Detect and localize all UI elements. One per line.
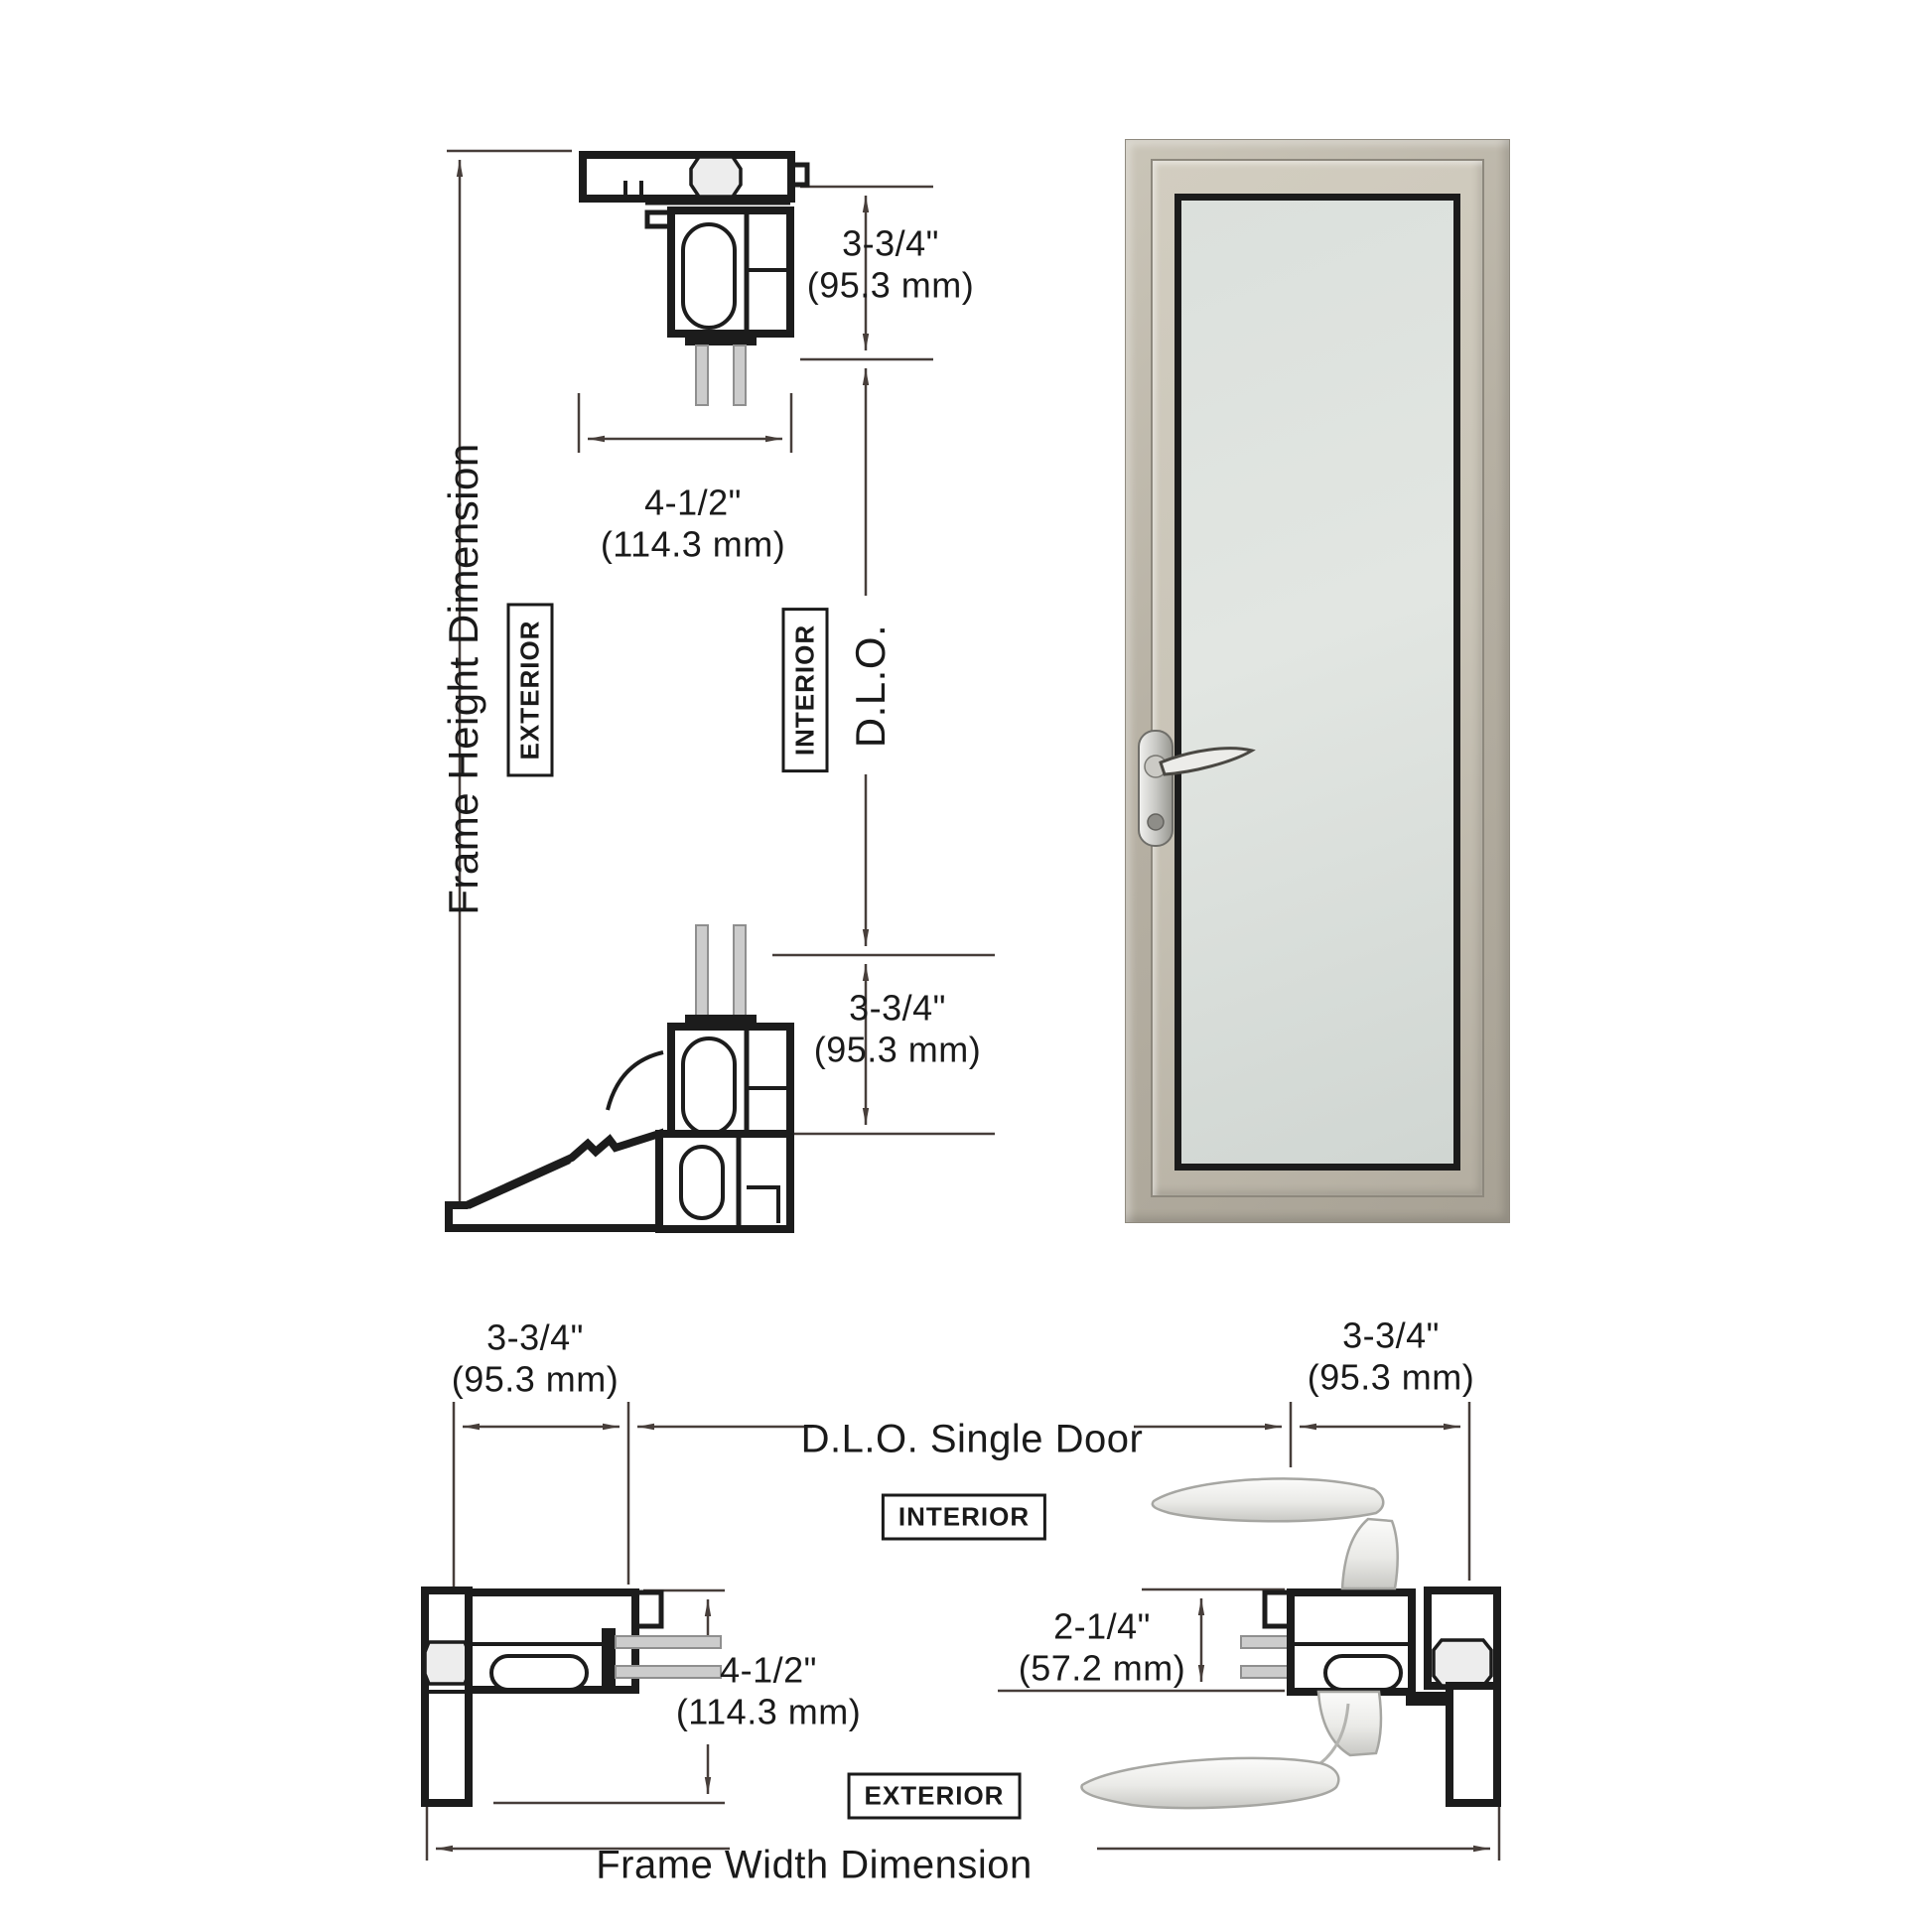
dim-inches: 3-3/4"	[1308, 1314, 1475, 1356]
interior-label-top: INTERIOR	[782, 608, 829, 772]
dim-left-jamb-width: 3-3/4" (95.3 mm)	[452, 1316, 620, 1400]
dim-inches: 2-1/4"	[1019, 1605, 1186, 1647]
dlo-vertical-label: D.L.O.	[847, 624, 895, 748]
dim-inches: 4-1/2"	[601, 482, 785, 523]
dim-handle-backset: 2-1/4" (57.2 mm)	[1019, 1605, 1186, 1689]
exterior-label-plan: EXTERIOR	[848, 1773, 1022, 1820]
exterior-label-top: EXTERIOR	[507, 604, 554, 777]
dim-right-jamb-width: 3-3/4" (95.3 mm)	[1308, 1314, 1475, 1398]
dim-sill-height: 3-3/4" (95.3 mm)	[814, 987, 982, 1070]
dim-inches: 4-1/2"	[676, 1649, 861, 1691]
dim-metric: (57.2 mm)	[1019, 1647, 1186, 1689]
handle-lever	[1161, 749, 1252, 774]
dim-metric: (95.3 mm)	[1308, 1356, 1475, 1398]
interior-label-plan: INTERIOR	[882, 1494, 1046, 1541]
frame-height-dimension-label: Frame Height Dimension	[440, 443, 487, 915]
dim-metric: (114.3 mm)	[601, 523, 785, 565]
dim-metric: (114.3 mm)	[676, 1691, 861, 1732]
interior-handle-plan	[1153, 1478, 1398, 1588]
dim-metric: (95.3 mm)	[452, 1358, 620, 1400]
sill-section-drawing	[449, 925, 790, 1229]
dim-head-depth: 4-1/2" (114.3 mm)	[601, 482, 785, 565]
page: Frame Height Dimension EXTERIOR INTERIOR…	[0, 0, 1932, 1932]
dim-inches: 3-3/4"	[452, 1316, 620, 1358]
dim-metric: (95.3 mm)	[807, 264, 975, 306]
door-handle	[1133, 723, 1282, 862]
dim-metric: (95.3 mm)	[814, 1029, 982, 1070]
door-glass	[1181, 201, 1453, 1164]
dim-inches: 3-3/4"	[814, 987, 982, 1029]
exterior-handle-plan	[1081, 1692, 1380, 1808]
frame-width-dimension-label: Frame Width Dimension	[596, 1844, 1033, 1888]
dim-head-height: 3-3/4" (95.3 mm)	[807, 222, 975, 306]
dlo-single-door-label: D.L.O. Single Door	[801, 1418, 1144, 1462]
handle-keyhole	[1148, 814, 1164, 830]
dim-jamb-depth: 4-1/2" (114.3 mm)	[676, 1649, 861, 1732]
door-photo	[1125, 139, 1510, 1223]
dim-inches: 3-3/4"	[807, 222, 975, 264]
head-section-drawing	[583, 155, 807, 405]
